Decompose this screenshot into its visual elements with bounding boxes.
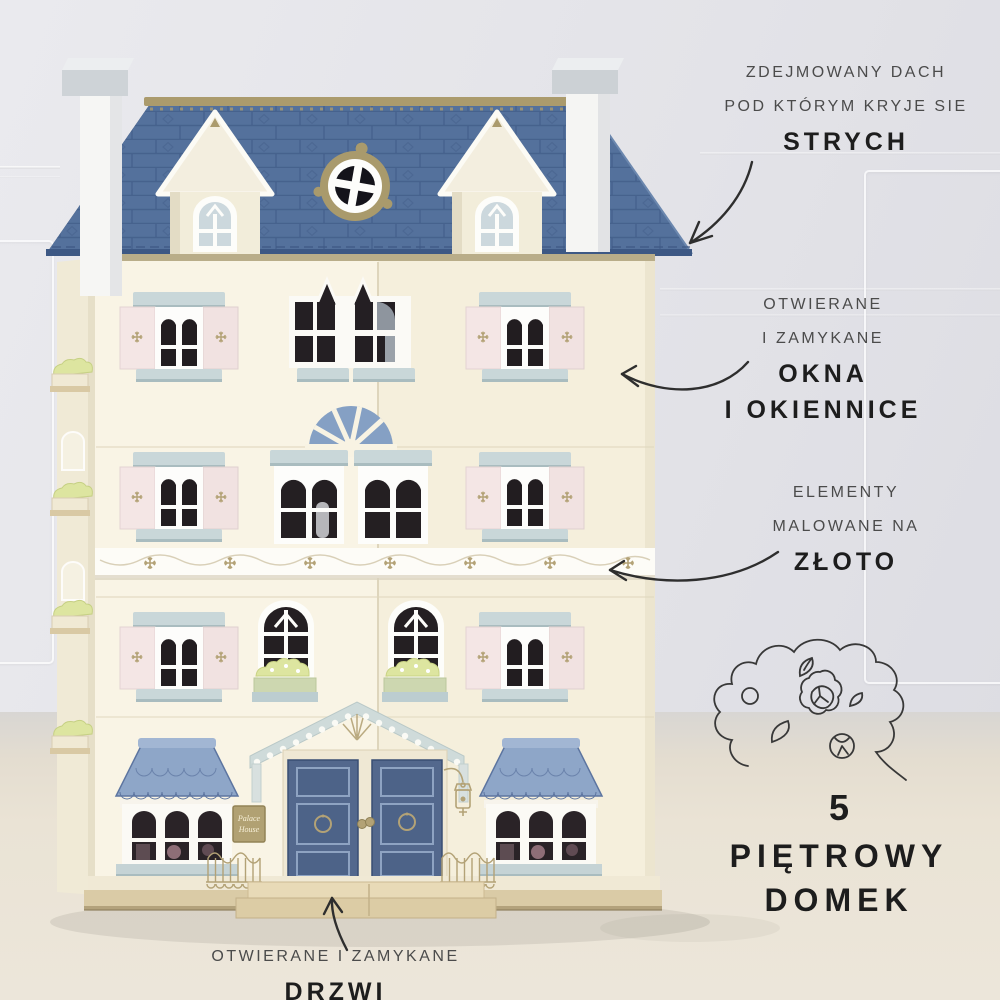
side-window-box: [50, 720, 92, 754]
door-note-line1: OTWIERANE I ZAMYKANE: [178, 940, 493, 974]
door-note: OTWIERANE I ZAMYKANE DRZWI: [178, 940, 493, 1000]
arrow-roof-icon: [690, 162, 752, 243]
attic-note-line1: ZDEJMOWANY DACH: [690, 56, 1000, 90]
storeys-note: 5 PIĘTROWY DOMEK: [700, 782, 978, 922]
door-knob: [366, 818, 375, 827]
bay-window-right: [480, 738, 602, 878]
side-window-box: [50, 358, 92, 392]
windows-note-emphasis2: I OKIENNICE: [692, 392, 954, 428]
palace-house-sign: Palace House: [233, 806, 265, 842]
gold-note-line2: MALOWANE NA: [712, 510, 980, 544]
flower-doodle-icon: [714, 640, 906, 780]
window-lower-left: [120, 612, 238, 702]
roof-ridge-gold-trim: [144, 97, 594, 106]
storeys-note-line1: PIĘTROWY: [700, 834, 978, 878]
product-infographic: Palace House: [0, 0, 1000, 1000]
side-window-box: [50, 482, 92, 516]
door-right: [372, 760, 442, 882]
storeys-note-number: 5: [700, 782, 978, 834]
attic-note-line2: POD KTÓRYM KRYJE SIE: [690, 90, 1000, 124]
attic-note: ZDEJMOWANY DACH POD KTÓRYM KRYJE SIE STR…: [690, 56, 1000, 160]
facade: Palace House: [50, 254, 662, 918]
windows-note: OTWIERANE I ZAMYKANE OKNA I OKIENNICE: [692, 288, 954, 428]
sign-text-line2: House: [238, 825, 260, 834]
side-window-box: [50, 600, 92, 634]
windows-note-line2: I ZAMYKANE: [692, 322, 954, 356]
front-steps: [236, 882, 496, 918]
window-mid-center-left: [270, 450, 348, 544]
attic-note-emphasis: STRYCH: [690, 124, 1000, 160]
gold-note-emphasis: ZŁOTO: [712, 544, 980, 580]
door-note-emphasis: DRZWI: [178, 974, 493, 1000]
door-left: [288, 760, 358, 882]
window-mid-center-right: [354, 450, 432, 544]
window-top-left: [120, 292, 238, 382]
windows-note-emphasis1: OKNA: [692, 356, 954, 392]
gold-note: ELEMENTY MALOWANE NA ZŁOTO: [712, 476, 980, 580]
window-mid-left: [120, 452, 238, 542]
storeys-note-line2: DOMEK: [700, 878, 978, 922]
window-lower-center-left: [252, 600, 318, 702]
front-doors: [283, 750, 447, 886]
window-lower-center-right: [382, 600, 448, 702]
window-lower-right: [466, 612, 584, 702]
window-mid-right: [466, 452, 584, 542]
windows-note-line1: OTWIERANE: [692, 288, 954, 322]
sign-text-line1: Palace: [237, 814, 261, 823]
gold-frieze: [95, 548, 655, 580]
gold-note-line1: ELEMENTY: [712, 476, 980, 510]
window-top-right: [466, 292, 584, 382]
